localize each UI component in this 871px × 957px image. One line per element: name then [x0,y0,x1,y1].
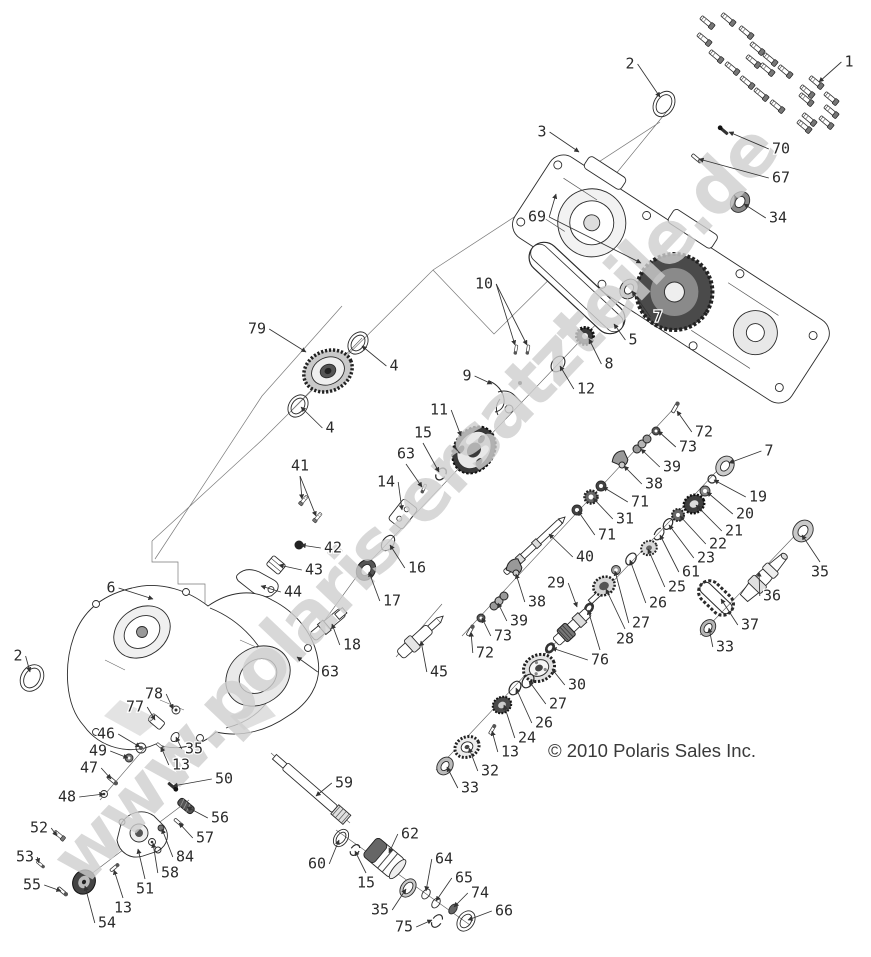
part-24-gear [490,694,514,717]
part-7-bearing-right [712,453,738,480]
leader-line [447,767,458,788]
callout-label-15: 15 [357,874,375,892]
leader-line [696,505,722,531]
leader-line [362,346,386,366]
callout-label-60: 60 [308,855,326,873]
callout-label-57: 57 [196,829,214,847]
callout-label-35: 35 [371,901,389,919]
callout-label-13: 13 [501,743,519,761]
callout-label-4: 4 [325,419,334,437]
callout-label-63: 63 [321,663,339,681]
leader-line [578,511,595,535]
leader-line [660,535,679,572]
leader-line [454,893,468,907]
leader-line [648,549,665,587]
callout-label-29: 29 [547,574,565,592]
callout-label-37: 37 [741,616,759,634]
part-15-clip-b [348,843,361,857]
leader-line [300,476,316,516]
callout-label-73: 73 [679,438,697,456]
callout-label-26: 26 [649,594,667,612]
callout-label-25: 25 [668,578,686,596]
callout-label-49: 49 [89,742,107,760]
part-60-ring [330,826,352,849]
callout-label-48: 48 [58,788,76,806]
leader-line [588,610,600,650]
callout-label-44: 44 [284,583,302,601]
part-35-bearing-right [789,516,818,546]
callout-label-26: 26 [535,714,553,732]
leader-line [658,431,676,447]
leader-line [819,62,841,82]
leader-line [729,451,761,463]
callout-label-52: 52 [30,819,48,837]
part-32-gear [451,733,482,762]
copyright-text: © 2010 Polaris Sales Inc. [548,740,756,761]
part-43-clamp [266,555,286,574]
callout-label-19: 19 [749,488,767,506]
callout-label-13: 13 [172,756,190,774]
callout-label-1: 1 [844,53,853,71]
callout-label-32: 32 [481,762,499,780]
callout-label-63: 63 [397,445,415,463]
part-33-ring-right [697,617,719,640]
leader-line [492,731,498,752]
callout-label-17: 17 [383,592,401,610]
callout-label-38: 38 [645,475,663,493]
callout-label-74: 74 [471,884,489,902]
part-65-washer [430,896,442,909]
callout-label-39: 39 [663,458,681,476]
leader-line [615,571,629,623]
part-4-ring-upper [344,328,373,358]
callout-label-3: 3 [537,123,546,141]
callout-label-54: 54 [98,914,116,932]
callout-label-34: 34 [769,209,787,227]
part-39-spring-center [490,592,508,610]
part-41-screws [298,495,323,523]
callout-label-7: 7 [653,308,662,326]
leader-line [714,480,746,497]
callout-label-18: 18 [343,636,361,654]
leader-line [552,648,588,660]
leader-line [549,534,573,557]
callout-label-11: 11 [430,401,448,419]
callout-label-4: 4 [389,357,398,375]
part-31-gear [585,491,598,504]
part-26-ring-r [624,551,639,567]
part-66-seal [453,907,479,934]
part-20-washer [700,486,710,496]
callout-label-42: 42 [324,539,342,557]
part-4-ring-lower [284,391,313,421]
callout-label-53: 53 [16,848,34,866]
callout-label-16: 16 [408,559,426,577]
callout-label-59: 59 [335,774,353,792]
leader-line [630,560,646,603]
leader-line [496,284,515,345]
callout-label-69: 69 [528,208,546,226]
part-29-shaft [551,606,594,648]
leader-line [416,920,432,927]
leader-line [707,492,733,514]
leader-line [426,859,432,891]
callout-label-47: 47 [80,759,98,777]
leader-line [638,64,660,97]
parts-diagram-page: www.polaris-ersatzteile.de 1237067346910… [0,0,871,957]
part-2-oring-left [15,660,48,695]
callout-label-38: 38 [528,593,546,611]
leader-line [593,498,613,519]
callout-label-40: 40 [576,548,594,566]
part-76-bearing-a [543,641,557,656]
part-73-washer-right [652,427,660,435]
callout-label-13: 13 [114,899,132,917]
callout-label-67: 67 [772,169,790,187]
callout-label-24: 24 [518,729,536,747]
part-2-oring-top [649,87,680,120]
leader-line [641,449,660,467]
callout-label-62: 62 [401,825,419,843]
part-72-bolt-center [466,624,476,637]
callout-label-75: 75 [395,918,413,936]
leader-line [471,632,473,653]
callout-label-9: 9 [462,367,471,385]
part-26-ring-c [507,679,524,697]
callout-label-41: 41 [291,457,309,475]
leader-line [529,681,546,704]
leader-line [603,487,628,502]
callout-label-43: 43 [305,561,323,579]
leader-line [680,516,706,544]
callout-label-2: 2 [625,55,634,73]
leader-line [436,878,452,901]
leader-line [498,603,507,621]
callout-label-5: 5 [628,331,637,349]
part-75-clip [429,913,444,930]
callout-label-55: 55 [23,876,41,894]
leader-line [269,329,306,352]
leader-line [802,535,820,562]
callout-label-77: 77 [126,698,144,716]
part-35-bearing-b [397,876,420,900]
callout-label-72: 72 [695,423,713,441]
callout-label-20: 20 [736,505,754,523]
part-30-gear [519,649,559,686]
callout-label-73: 73 [494,627,512,645]
callout-label-45: 45 [430,663,448,681]
callout-label-71: 71 [631,493,649,511]
callout-label-8: 8 [604,355,613,373]
part-33-ring-c [433,754,456,778]
leader-line [606,589,625,629]
callout-label-30: 30 [568,676,586,694]
watermark-text: www.polaris-ersatzteile.de [35,108,793,901]
callout-label-28: 28 [616,630,634,648]
leader-line [482,618,491,636]
callout-label-56: 56 [211,809,229,827]
callout-label-27: 27 [632,614,650,632]
callout-label-36: 36 [763,587,781,605]
callout-label-79: 79 [248,320,266,338]
callout-label-27: 27 [549,695,567,713]
callout-label-70: 70 [772,140,790,158]
callout-label-66: 66 [495,902,513,920]
callout-label-10: 10 [475,275,493,293]
callout-label-76: 76 [591,651,609,669]
callout-label-72: 72 [476,644,494,662]
part-71-washer-a [596,481,606,491]
leader-line [504,705,515,738]
callout-label-33: 33 [461,779,479,797]
callout-label-78: 78 [145,685,163,703]
callout-label-64: 64 [435,850,453,868]
callout-label-21: 21 [725,522,743,540]
callout-label-2: 2 [13,647,22,665]
leader-line [552,669,565,685]
leader-line [392,889,406,910]
part-45-shaft [395,610,449,661]
callout-label-46: 46 [97,725,115,743]
callout-label-6: 6 [106,579,115,597]
callout-label-31: 31 [616,510,634,528]
leader-line [301,407,322,428]
part-25-gear [639,538,659,557]
callout-label-35: 35 [811,563,829,581]
callout-label-51: 51 [136,880,154,898]
callout-label-14: 14 [377,473,395,491]
bolt-cluster [696,12,839,134]
part-71-washer-b [572,505,582,515]
leader-line [179,823,193,838]
leader-line [421,641,427,672]
leader-line [496,284,527,345]
callout-label-71: 71 [598,526,616,544]
part-22-gear [672,509,684,521]
leader-line [677,411,692,432]
exploded-parts-diagram: www.polaris-ersatzteile.de 1237067346910… [0,0,871,957]
callout-label-50: 50 [215,770,233,788]
leader-line [624,466,642,484]
callout-label-7: 7 [764,442,773,460]
part-28-gear [588,573,617,604]
part-37-chain [694,576,738,620]
callout-label-58: 58 [161,864,179,882]
leader-line [516,574,525,602]
leader-line [669,525,694,558]
callout-label-39: 39 [510,612,528,630]
callout-label-15: 15 [414,424,432,442]
callout-label-33: 33 [716,638,734,656]
part-38-fork-right [610,448,632,470]
part-72-bolt-right [671,401,681,414]
leader-line [568,583,577,607]
part-74-washer [447,902,459,915]
leader-line [550,132,579,152]
callout-label-12: 12 [577,380,595,398]
leader-line [26,656,30,672]
leader-line [516,688,532,723]
